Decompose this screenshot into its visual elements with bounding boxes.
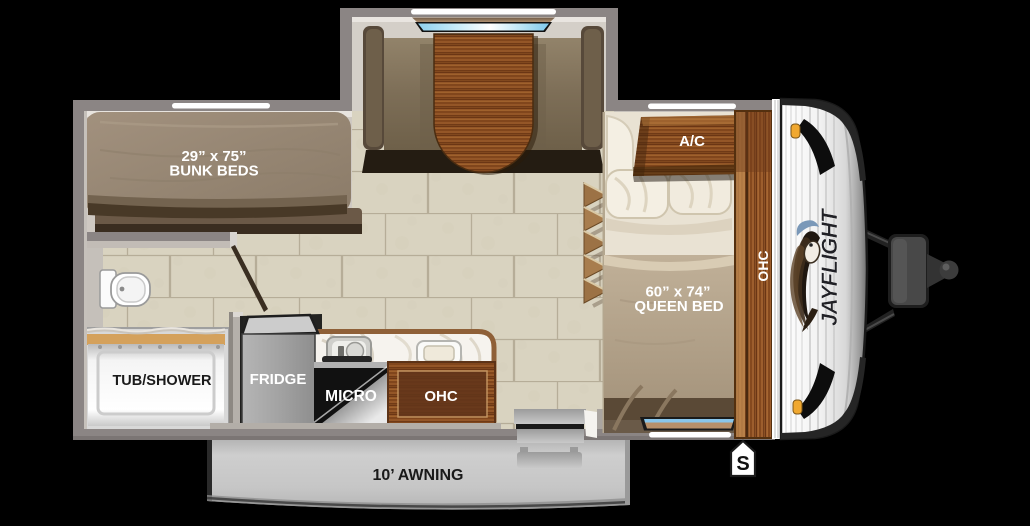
svg-text:A/C: A/C [679,133,705,150]
svg-text:MICRO: MICRO [325,388,377,405]
svg-text:OHC: OHC [424,388,458,405]
svg-text:BUNK BEDS: BUNK BEDS [169,163,258,180]
svg-text:FRIDGE: FRIDGE [250,371,307,388]
svg-text:QUEEN BED: QUEEN BED [634,298,723,315]
svg-text:TUB/SHOWER: TUB/SHOWER [112,373,212,389]
svg-text:OHC: OHC [755,250,771,281]
svg-text:10’ AWNING: 10’ AWNING [373,467,464,484]
svg-text:JAYFLIGHT: JAYFLIGHT [817,208,842,326]
svg-text:S: S [736,453,749,475]
